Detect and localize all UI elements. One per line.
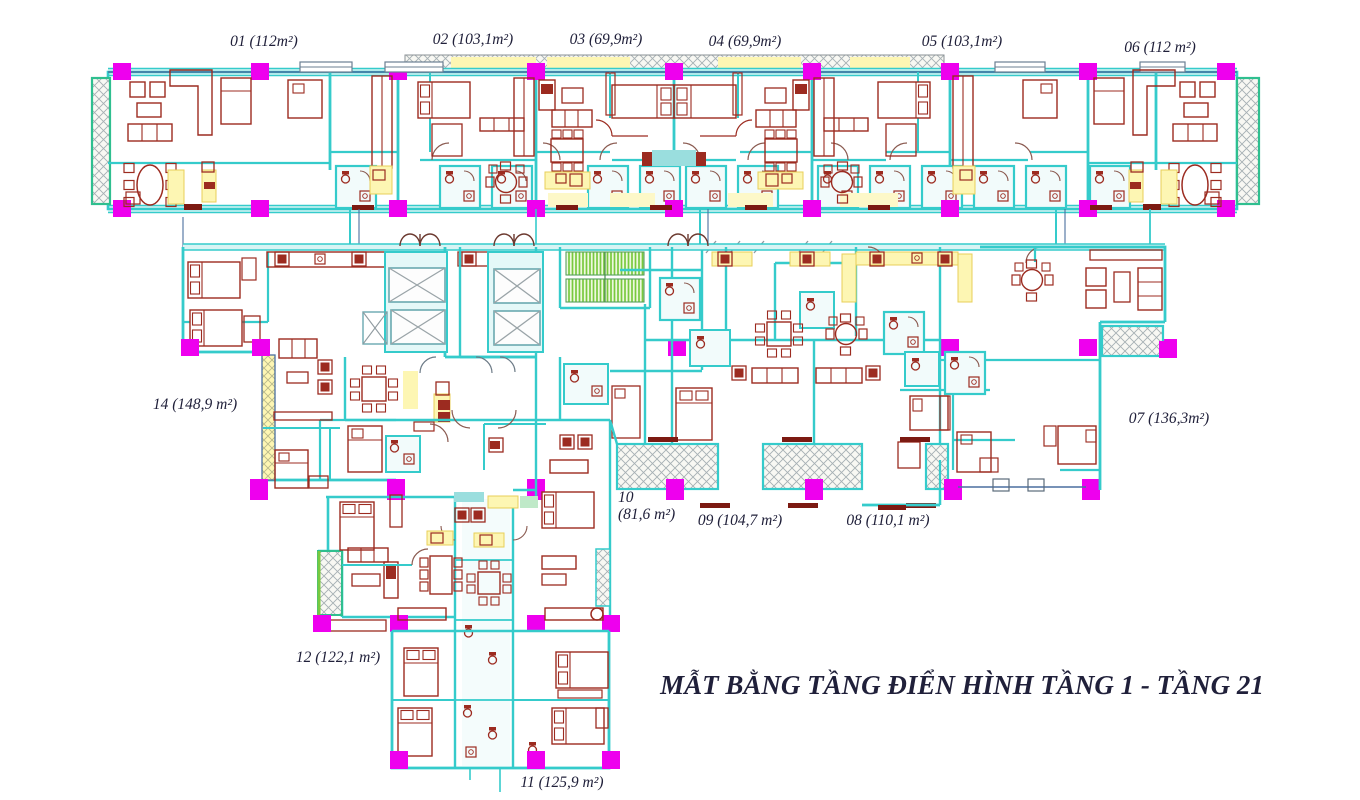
svg-text:04 (69,9m²): 04 (69,9m²) — [709, 33, 782, 50]
svg-text:03 (69,9m²): 03 (69,9m²) — [570, 31, 643, 48]
svg-text:(81,6 m²): (81,6 m²) — [618, 506, 675, 523]
svg-text:02 (103,1m²): 02 (103,1m²) — [433, 31, 513, 48]
svg-text:10: 10 — [618, 489, 634, 506]
svg-text:05 (103,1m²): 05 (103,1m²) — [922, 33, 1002, 50]
svg-text:12 (122,1 m²): 12 (122,1 m²) — [296, 649, 380, 666]
svg-text:06 (112 m²): 06 (112 m²) — [1124, 39, 1196, 56]
svg-text:09 (104,7 m²): 09 (104,7 m²) — [698, 512, 782, 529]
svg-text:11 (125,9 m²): 11 (125,9 m²) — [520, 774, 603, 791]
svg-text:01 (112m²): 01 (112m²) — [230, 33, 298, 50]
svg-text:14 (148,9 m²): 14 (148,9 m²) — [153, 396, 237, 413]
svg-text:MẪT BẰNG TẦNG ĐIỂN HÌNH TẦNG 1: MẪT BẰNG TẦNG ĐIỂN HÌNH TẦNG 1 - TẦNG 21 — [659, 669, 1264, 700]
svg-text:08 (110,1 m²): 08 (110,1 m²) — [846, 512, 929, 529]
svg-text:07 (136,3m²): 07 (136,3m²) — [1129, 410, 1209, 427]
